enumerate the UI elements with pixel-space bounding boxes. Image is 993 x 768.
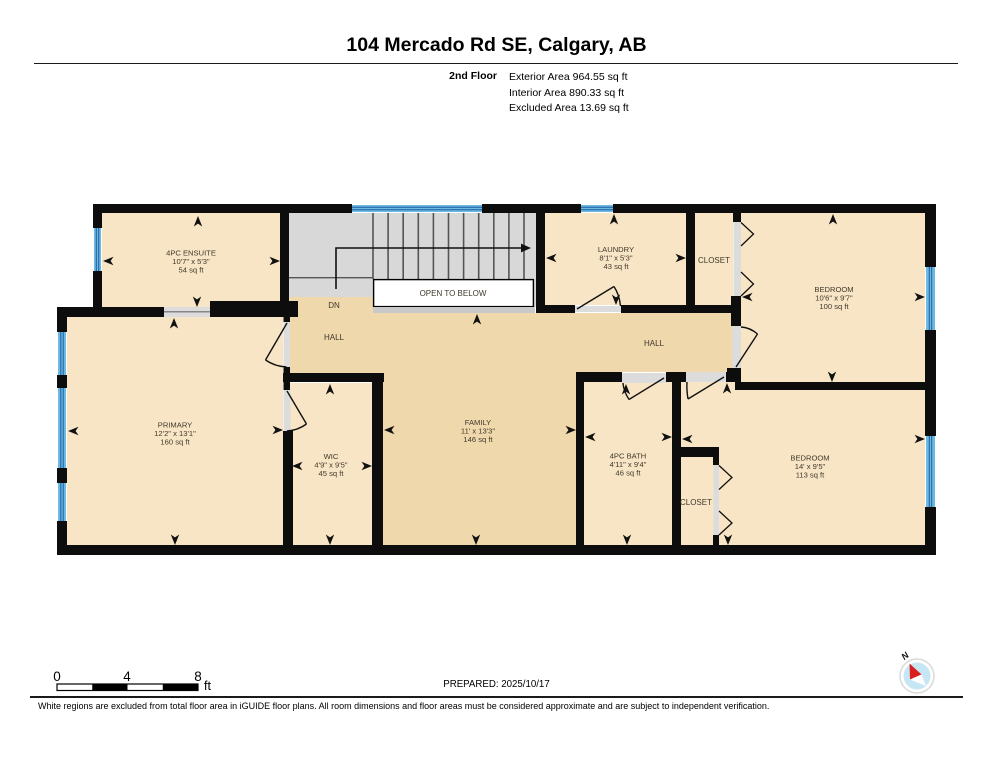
svg-text:DN: DN <box>328 301 340 310</box>
svg-text:146 sq ft: 146 sq ft <box>463 435 493 444</box>
svg-text:54 sq ft: 54 sq ft <box>179 266 205 275</box>
svg-text:113 sq ft: 113 sq ft <box>796 471 825 480</box>
svg-text:CLOSET: CLOSET <box>680 498 712 507</box>
svg-text:43 sq ft: 43 sq ft <box>604 262 630 271</box>
svg-text:HALL: HALL <box>324 333 345 342</box>
svg-text:CLOSET: CLOSET <box>698 256 730 265</box>
svg-text:100 sq ft: 100 sq ft <box>819 302 849 311</box>
svg-text:46 sq ft: 46 sq ft <box>616 469 642 478</box>
svg-text:HALL: HALL <box>644 339 665 348</box>
svg-text:160 sq ft: 160 sq ft <box>160 438 190 447</box>
svg-text:45 sq ft: 45 sq ft <box>319 469 345 478</box>
svg-text:OPEN TO BELOW: OPEN TO BELOW <box>420 289 487 298</box>
